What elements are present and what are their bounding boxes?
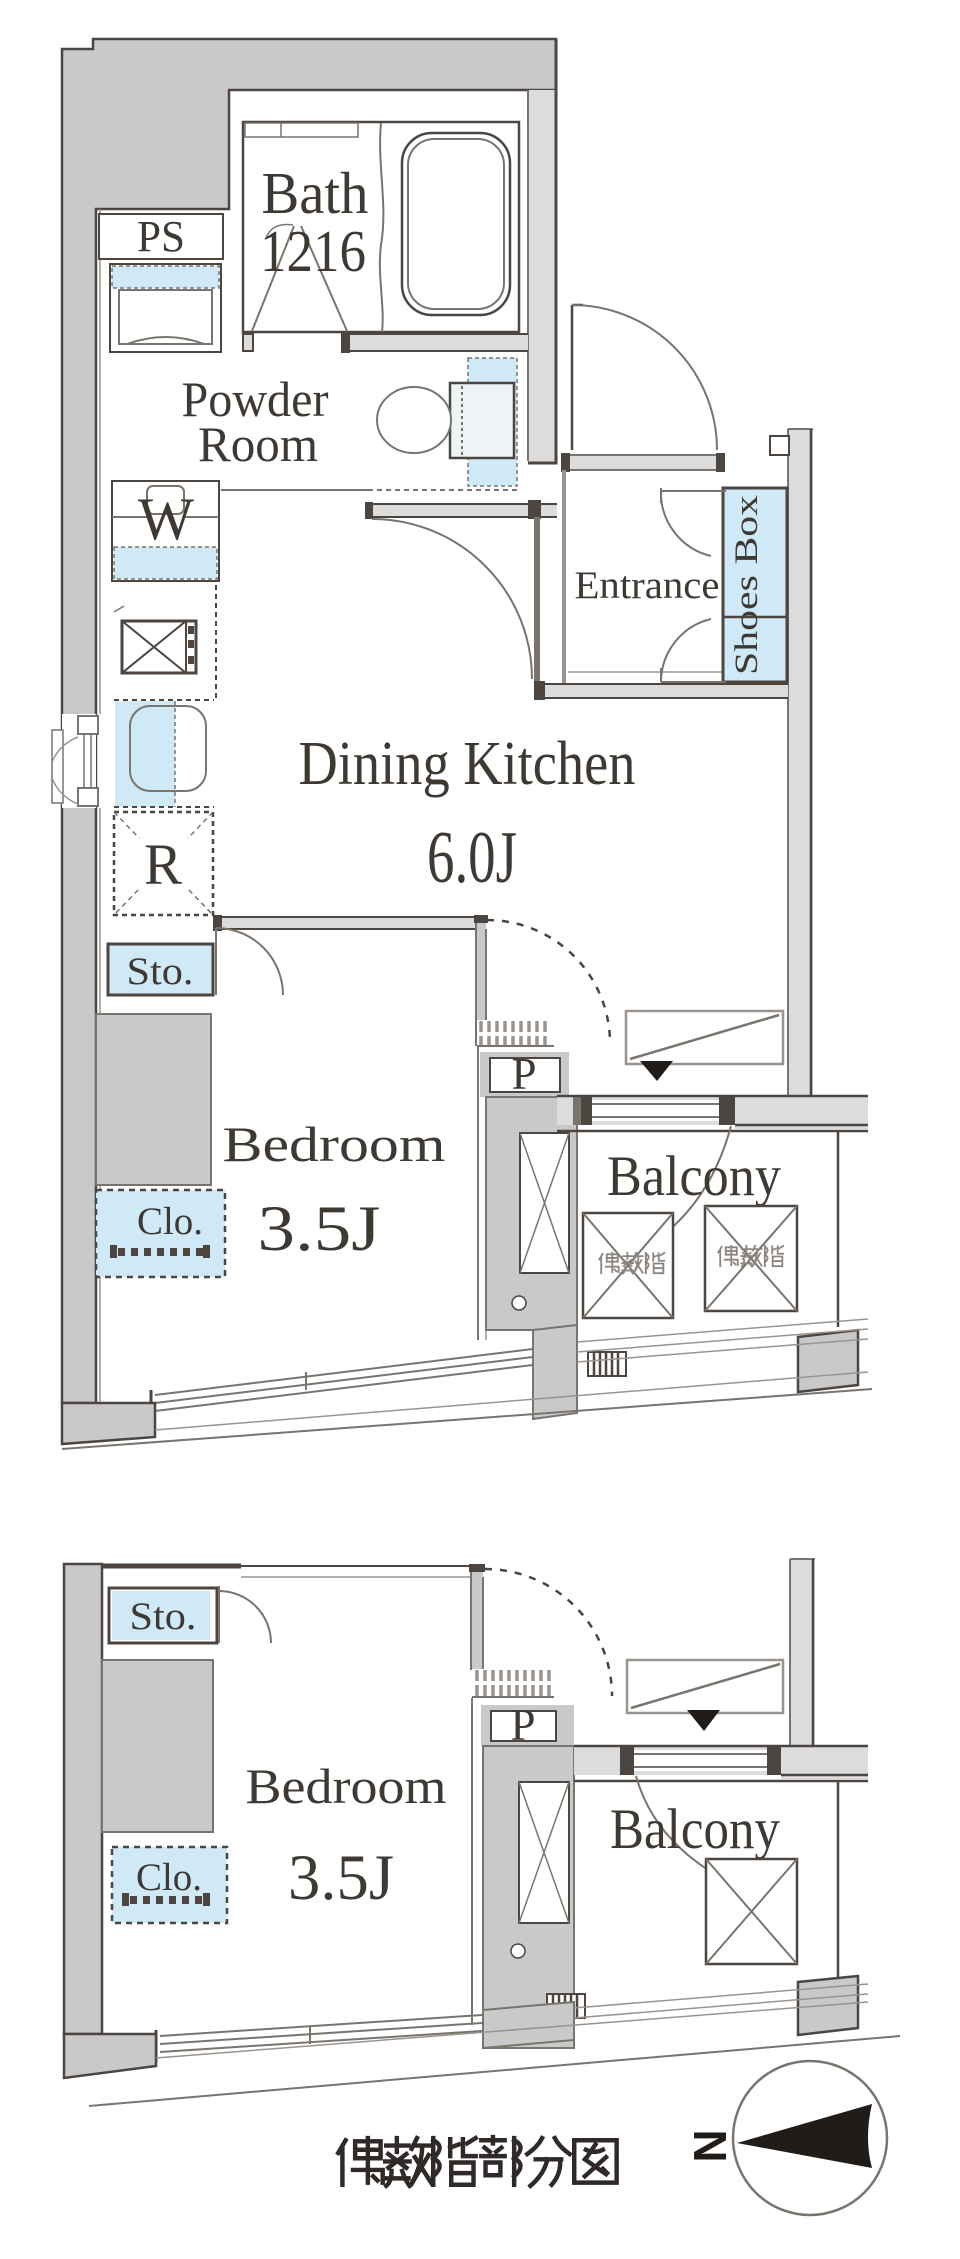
svg-text:Bath: Bath [262, 160, 369, 226]
svg-text:Dining Kitchen: Dining Kitchen [299, 730, 636, 798]
svg-text:3.5J: 3.5J [288, 1842, 394, 1914]
svg-text:6.0J: 6.0J [427, 817, 517, 899]
svg-text:Balcony: Balcony [610, 1798, 780, 1861]
svg-text:R: R [144, 832, 182, 897]
svg-text:PS: PS [137, 212, 185, 261]
svg-text:Balcony: Balcony [607, 1145, 781, 1208]
svg-text:Entrance: Entrance [575, 564, 720, 607]
svg-text:P: P [510, 1700, 535, 1750]
svg-text:1216: 1216 [260, 218, 366, 284]
svg-text:Bedroom: Bedroom [246, 1758, 447, 1814]
svg-text:Bedroom: Bedroom [223, 1116, 446, 1172]
svg-text:3.5J: 3.5J [258, 1193, 381, 1265]
svg-text:Clo.: Clo. [137, 1200, 203, 1243]
svg-text:Shoes Box: Shoes Box [729, 494, 765, 675]
svg-text:N: N [684, 2129, 736, 2162]
svg-text:Sto.: Sto. [127, 950, 194, 993]
svg-text:Sto.: Sto. [130, 1595, 197, 1638]
svg-text:P: P [511, 1049, 536, 1099]
svg-text:Clo.: Clo. [136, 1856, 202, 1899]
svg-text:Room: Room [198, 416, 318, 472]
svg-text:W: W [138, 486, 194, 552]
